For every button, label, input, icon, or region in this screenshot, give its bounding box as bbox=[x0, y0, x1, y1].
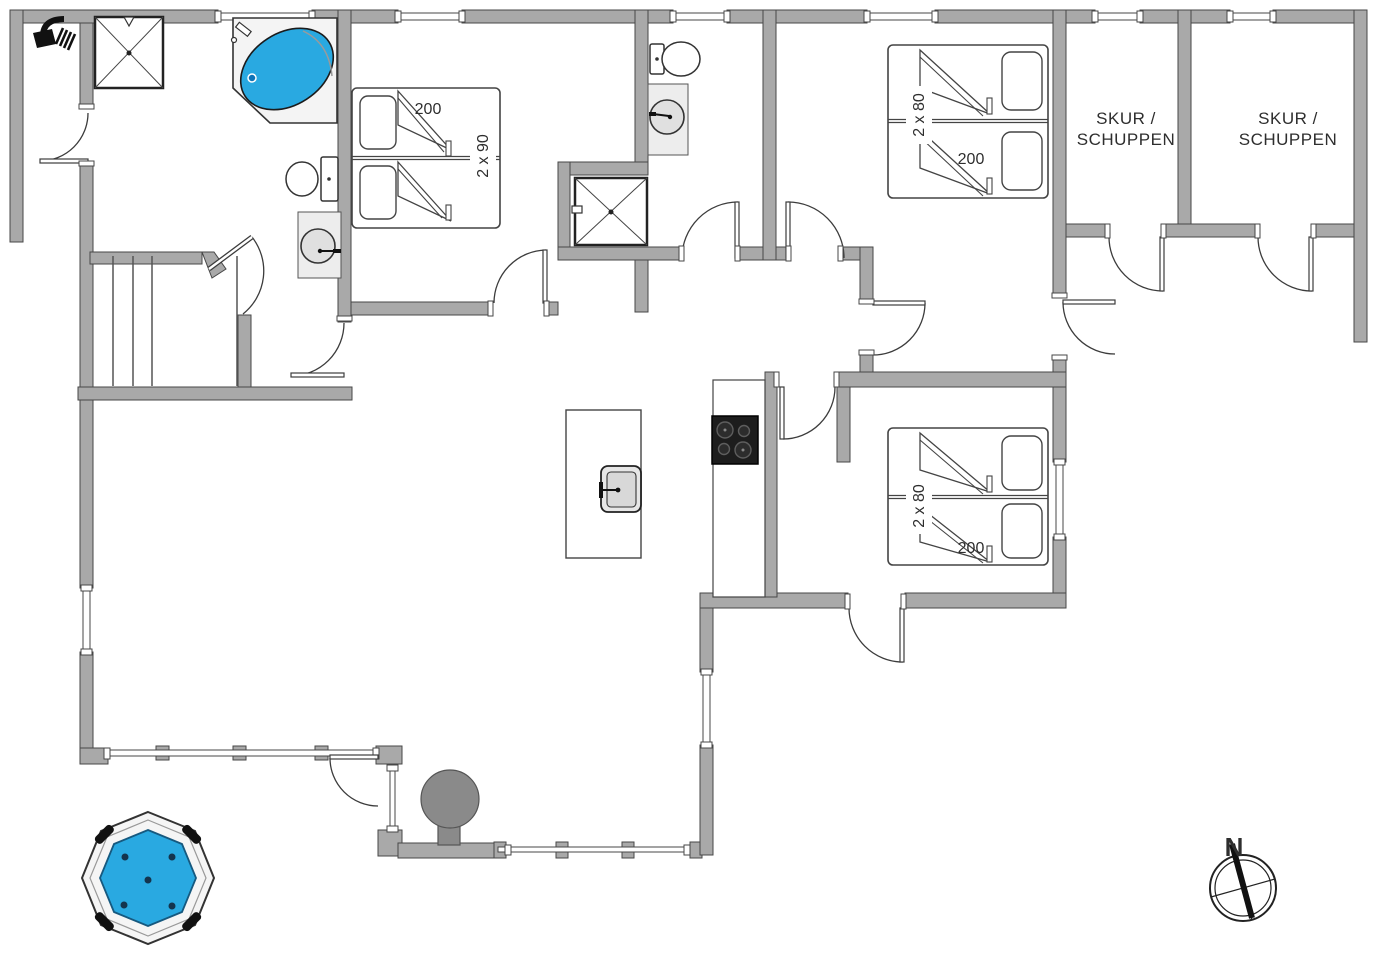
double-bed: 2 x 80 200 bbox=[888, 45, 1048, 198]
window bbox=[81, 585, 92, 655]
bed-size-label: 2 x 80 bbox=[911, 93, 928, 137]
stove-cooktop bbox=[712, 416, 758, 464]
window bbox=[1227, 11, 1276, 22]
shed1-label-line1: SKUR / bbox=[1096, 109, 1156, 128]
shed2-label-line2: SCHUPPEN bbox=[1239, 130, 1337, 149]
shower-cabin bbox=[95, 17, 163, 88]
shed2-label-line1: SKUR / bbox=[1258, 109, 1318, 128]
double-bed: 200 2 x 90 bbox=[352, 88, 500, 228]
kitchen-island bbox=[566, 410, 641, 558]
floorplan-page: 200 2 x 90 2 x 80 200 2 x 80 200 bbox=[0, 0, 1400, 964]
window bbox=[670, 11, 730, 22]
window bbox=[395, 11, 465, 22]
window bbox=[1054, 459, 1065, 540]
window bbox=[1092, 11, 1143, 22]
bed-width-label: 200 bbox=[415, 101, 442, 118]
shower-cabin bbox=[572, 178, 647, 245]
bed-width-label: 200 bbox=[958, 151, 985, 168]
compass-north-label: N bbox=[1225, 832, 1244, 862]
island-sink bbox=[599, 466, 641, 512]
washbasin bbox=[648, 84, 688, 155]
toilet bbox=[650, 42, 700, 76]
shed1-label-line2: SCHUPPEN bbox=[1077, 130, 1175, 149]
window bbox=[701, 669, 712, 748]
bed-size-label: 2 x 90 bbox=[475, 134, 492, 178]
double-bed: 2 x 80 200 bbox=[888, 428, 1048, 565]
hot-tub bbox=[82, 812, 214, 944]
kitchen-counter bbox=[712, 380, 765, 597]
floorplan-svg: 200 2 x 90 2 x 80 200 2 x 80 200 bbox=[0, 0, 1400, 964]
bed-size-label: 2 x 80 bbox=[911, 484, 928, 528]
window bbox=[864, 11, 938, 22]
washbasin bbox=[298, 212, 341, 278]
bed-width-label: 200 bbox=[958, 540, 985, 557]
